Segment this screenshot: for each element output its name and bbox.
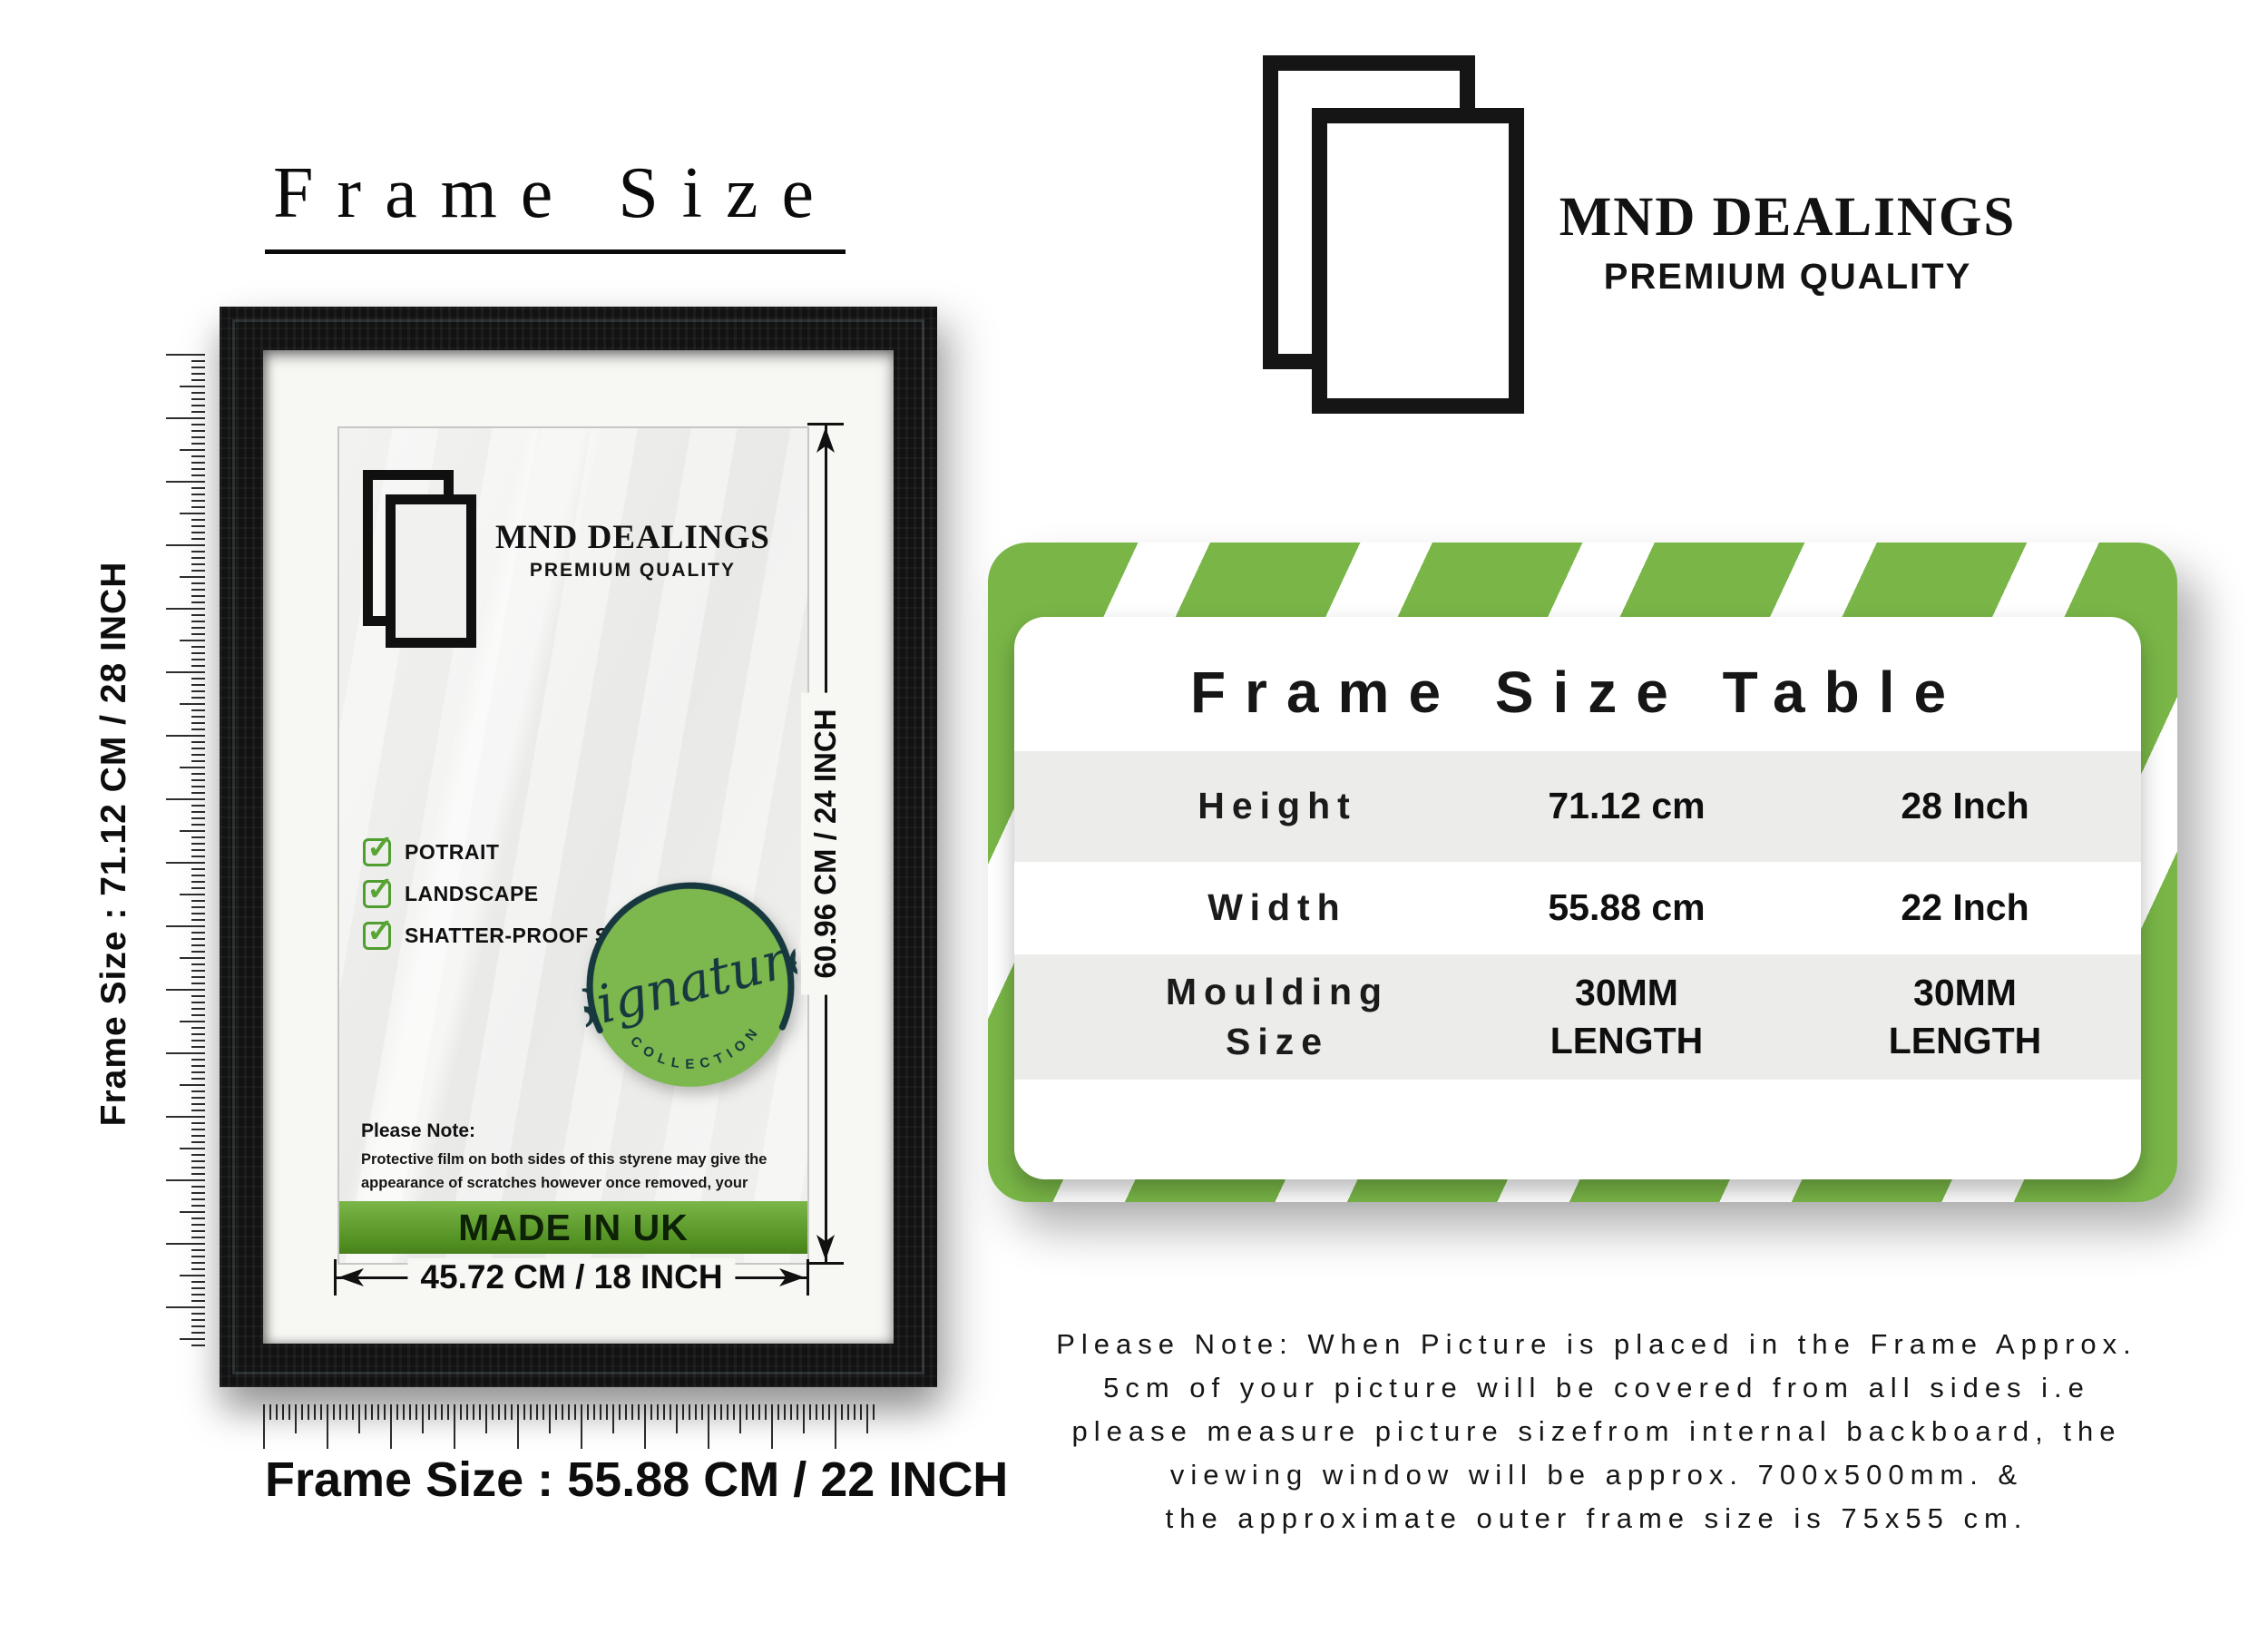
brand-logo-words: MND DEALINGS PREMIUM QUALITY: [1531, 186, 2044, 298]
footer-note-line: Please Note: When Picture is placed in t…: [962, 1323, 2232, 1366]
outer-width-label: Frame Size : 55.88 CM / 22 INCH: [265, 1452, 878, 1508]
logo-rectangle-front-icon: [1312, 108, 1524, 414]
frame-size-table-card: Frame Size Table Height 71.12 cm 28 Inch…: [988, 543, 2177, 1202]
list-item: POTRAIT: [363, 838, 697, 866]
frame-glass: MND DEALINGS PREMIUM QUALITY POTRAIT LAN…: [337, 426, 809, 1265]
brand-logo: MND DEALINGS PREMIUM QUALITY: [1263, 50, 2161, 413]
checkbox-checked-icon: [363, 880, 391, 908]
footer-note-line: 5cm of your picture will be covered from…: [962, 1366, 2232, 1410]
feature-label: POTRAIT: [405, 840, 499, 865]
frame-logo-icon: [363, 468, 477, 631]
brand-name: MND DEALINGS: [1531, 186, 2044, 249]
table-row-cm: 30MM LENGTH: [1432, 969, 1822, 1066]
page-title: Frame Size: [265, 152, 846, 254]
frame-size-infographic: Frame Size Frame Size : 71.12 CM / 28 IN…: [0, 0, 2268, 1633]
inner-height-label: 60.96 CM / 24 INCH: [801, 692, 850, 994]
picture-frame: MND DEALINGS PREMIUM QUALITY POTRAIT LAN…: [220, 307, 937, 1387]
made-in-uk-banner: MADE IN UK: [339, 1201, 807, 1254]
table-row-cm: 55.88 cm: [1432, 884, 1822, 932]
dimension-cap: [807, 1259, 809, 1296]
table-row-inch: 28 Inch: [1822, 782, 2141, 830]
table-row-label: Width: [1141, 883, 1413, 933]
frame-size-table: Frame Size Table Height 71.12 cm 28 Inch…: [1014, 617, 2141, 1179]
brand-tagline: PREMIUM QUALITY: [1531, 257, 2044, 298]
frame-logo-tagline: PREMIUM QUALITY: [495, 560, 770, 582]
footer-note: Please Note: When Picture is placed in t…: [962, 1323, 2232, 1540]
table-row-inch: 22 Inch: [1822, 884, 2141, 932]
signature-collection-badge: Signature COLLECTION: [572, 867, 809, 1105]
table-title: Frame Size Table: [1014, 659, 2141, 726]
bottom-ruler: [263, 1404, 878, 1452]
table-row: Width 55.88 cm 22 Inch: [1014, 862, 2141, 954]
inner-width-label: 45.72 CM / 18 INCH: [407, 1258, 735, 1296]
outer-height-label: Frame Size : 71.12 CM / 28 INCH: [94, 562, 134, 1127]
footer-note-line: viewing window will be approx. 700x500mm…: [962, 1453, 2232, 1497]
frame-logo-name: MND DEALINGS: [495, 518, 770, 557]
inner-width-dimension: 45.72 CM / 18 INCH: [334, 1256, 809, 1299]
frame-logo-words: MND DEALINGS PREMIUM QUALITY: [495, 518, 770, 582]
table-row-cm: 71.12 cm: [1432, 782, 1822, 830]
feature-label: LANDSCAPE: [405, 882, 539, 906]
table-row: Moulding Size 30MM LENGTH 30MM LENGTH: [1014, 954, 2141, 1080]
table-row-label: Height: [1141, 781, 1413, 831]
footer-note-line: please measure picture sizefrom internal…: [962, 1410, 2232, 1453]
table-row: Height 71.12 cm 28 Inch: [1014, 751, 2141, 862]
checkbox-checked-icon: [363, 838, 391, 866]
frame-mat: MND DEALINGS PREMIUM QUALITY POTRAIT LAN…: [263, 350, 894, 1344]
inner-height-dimension: 60.96 CM / 24 INCH: [806, 423, 846, 1265]
footer-note-line: the approximate outer frame size is 75x5…: [962, 1497, 2232, 1540]
table-row-inch: 30MM LENGTH: [1822, 969, 2141, 1066]
table-row-label: Moulding Size: [1141, 967, 1413, 1068]
dimension-cap: [807, 1262, 844, 1265]
left-ruler: [165, 354, 205, 1347]
frame-logo: MND DEALINGS PREMIUM QUALITY: [363, 468, 770, 631]
brand-logo-icon: [1263, 50, 1528, 402]
frame-note-title: Please Note:: [361, 1120, 791, 1142]
checkbox-checked-icon: [363, 922, 391, 950]
logo-rectangle-front-icon: [386, 494, 476, 648]
